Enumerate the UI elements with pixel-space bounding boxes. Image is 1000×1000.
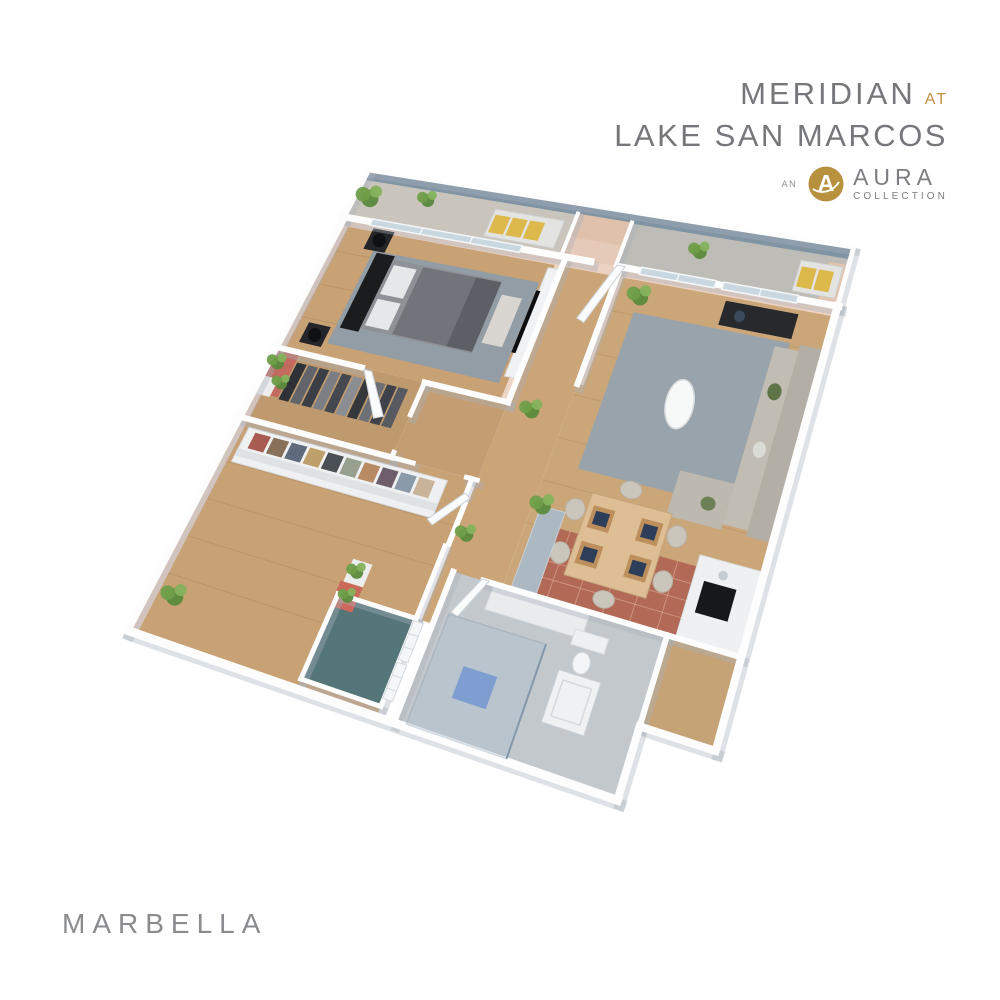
- plant-leaves: [267, 354, 278, 365]
- plant-leaves: [356, 187, 371, 202]
- plant-leaves: [688, 243, 700, 255]
- an-label: AN: [782, 179, 798, 189]
- plant-leaves: [700, 242, 710, 252]
- aura-wordmark-block: AURA COLLECTION: [853, 166, 948, 202]
- plant-leaves: [627, 286, 641, 300]
- plant-leaves: [455, 525, 467, 537]
- header-brand: MERIDIANAT LAKE SAN MARCOS AN A AURA COL…: [614, 76, 948, 202]
- brand-at: AT: [925, 91, 948, 108]
- plant-leaves: [277, 353, 286, 362]
- page: MERIDIANAT LAKE SAN MARCOS AN A AURA COL…: [0, 0, 1000, 1000]
- plan-name: MARBELLA: [62, 908, 267, 940]
- plant-leaves: [357, 563, 366, 572]
- aura-wordmark: AURA: [853, 166, 948, 189]
- plant-leaves: [160, 585, 175, 600]
- aura-collection-label: COLLECTION: [853, 191, 948, 202]
- logo-row: AN A AURA COLLECTION: [614, 166, 948, 202]
- plant-leaves: [466, 524, 476, 534]
- brand-line-2: LAKE SAN MARCOS: [614, 118, 948, 154]
- plant-leaves: [529, 495, 543, 509]
- aura-logo-badge: A: [808, 166, 844, 202]
- plant-leaves: [370, 186, 382, 198]
- brand-meridian: MERIDIAN: [740, 76, 916, 111]
- plant-leaves: [347, 588, 355, 596]
- plant-leaves: [519, 401, 532, 414]
- plant-leaves: [175, 584, 187, 596]
- plant-leaves: [346, 564, 357, 575]
- plant-leaves: [271, 375, 281, 385]
- plant-leaves: [640, 285, 651, 296]
- plant-leaves: [543, 494, 554, 505]
- plant-leaves: [338, 589, 348, 599]
- plant-leaves: [417, 192, 428, 203]
- plant-leaves: [532, 399, 543, 410]
- brand-line-1: MERIDIANAT: [614, 76, 948, 118]
- plant-leaves: [428, 191, 437, 200]
- plant-leaves: [281, 375, 289, 383]
